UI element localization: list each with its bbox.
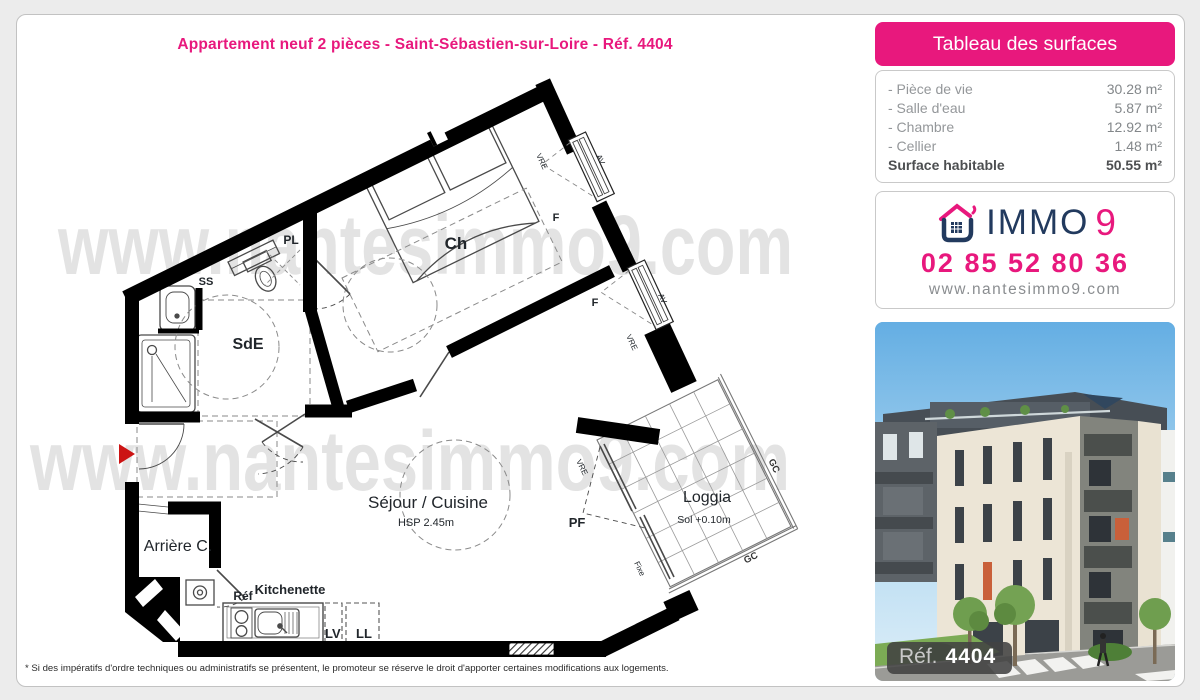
ref-badge: Réf.4404 — [887, 642, 1012, 674]
label-f: F — [592, 297, 599, 309]
agency-card: IMMO9 02 85 52 80 36 www.nantesimmo9.com — [875, 191, 1175, 309]
table-row-total: Surface habitable 50.55 m² — [888, 156, 1162, 175]
row-label: - Pièce de vie — [888, 80, 973, 99]
table-row: - Chambre 12.92 m² — [888, 118, 1162, 137]
wall-loggia-corner — [657, 329, 684, 387]
row-label: - Chambre — [888, 118, 954, 137]
walls-layer — [125, 89, 694, 657]
surface-table-header: Tableau des surfaces — [875, 22, 1175, 66]
table-row: - Salle d'eau 5.87 m² — [888, 99, 1162, 118]
shower — [137, 335, 195, 412]
room-label-sejour: Séjour / Cuisine — [368, 493, 488, 512]
ref-label: Réf. — [899, 645, 938, 668]
disclaimer: * Si des impératifs d'ordre techniques o… — [25, 663, 669, 674]
guardrail-label: GC — [742, 550, 760, 566]
brand-immo: IMMO — [986, 203, 1089, 243]
wall-vent — [509, 643, 554, 655]
label-vre: VRE — [534, 152, 549, 171]
row-value: 1.48 m² — [1115, 137, 1162, 156]
label-ll: LL — [356, 626, 372, 641]
wall-sde-sejour — [310, 308, 338, 406]
wall-bottom-right — [601, 613, 676, 650]
room-label-ss: SS — [199, 276, 214, 288]
label-vre: VRE — [624, 333, 639, 352]
house-icon — [934, 202, 980, 244]
agency-phone: 02 85 52 80 36 — [876, 248, 1174, 279]
water-heater — [186, 580, 214, 605]
label-sol: Sol +0.10m — [677, 514, 731, 526]
row-value: 12.92 m² — [1107, 118, 1162, 137]
row-label: Surface habitable — [888, 156, 1005, 175]
washbasin — [160, 286, 195, 331]
table-row: - Cellier 1.48 m² — [888, 137, 1162, 156]
row-value: 50.55 m² — [1106, 156, 1162, 175]
label-lv: LV — [325, 626, 341, 641]
row-label: - Salle d'eau — [888, 99, 965, 118]
table-row: - Pièce de vie 30.28 m² — [888, 80, 1162, 99]
room-label-sde: SdE — [232, 336, 263, 353]
label-kitchenette: Kitchenette — [255, 582, 326, 597]
surface-table: - Pièce de vie 30.28 m² - Salle d'eau 5.… — [875, 70, 1175, 183]
agency-website: www.nantesimmo9.com — [876, 281, 1174, 299]
ref-number: 4404 — [946, 645, 997, 668]
row-value: 30.28 m² — [1107, 80, 1162, 99]
room-label-ch: Ch — [445, 234, 468, 253]
sejour-ch-door-leaf — [420, 352, 449, 397]
row-value: 5.87 m² — [1115, 99, 1162, 118]
label-f: F — [553, 212, 560, 224]
building-photo: Réf.4404 — [875, 322, 1175, 681]
label-pf: PF — [569, 515, 586, 530]
window-av — [568, 132, 614, 202]
row-label: - Cellier — [888, 137, 936, 156]
building-render — [875, 322, 1175, 681]
agency-logo: IMMO9 — [876, 202, 1174, 244]
room-label-loggia: Loggia — [683, 489, 731, 506]
page-title: Appartement neuf 2 pièces - Saint-Sébast… — [20, 36, 830, 54]
label-fridge: Réf — [233, 589, 253, 603]
room-label-cellier: Arrière C. — [144, 538, 212, 555]
label-fixe: Fixe — [632, 560, 647, 578]
room-label-pl: PL — [283, 233, 298, 247]
brand-9: 9 — [1095, 202, 1116, 244]
label-hsp: HSP 2.45m — [398, 517, 454, 529]
